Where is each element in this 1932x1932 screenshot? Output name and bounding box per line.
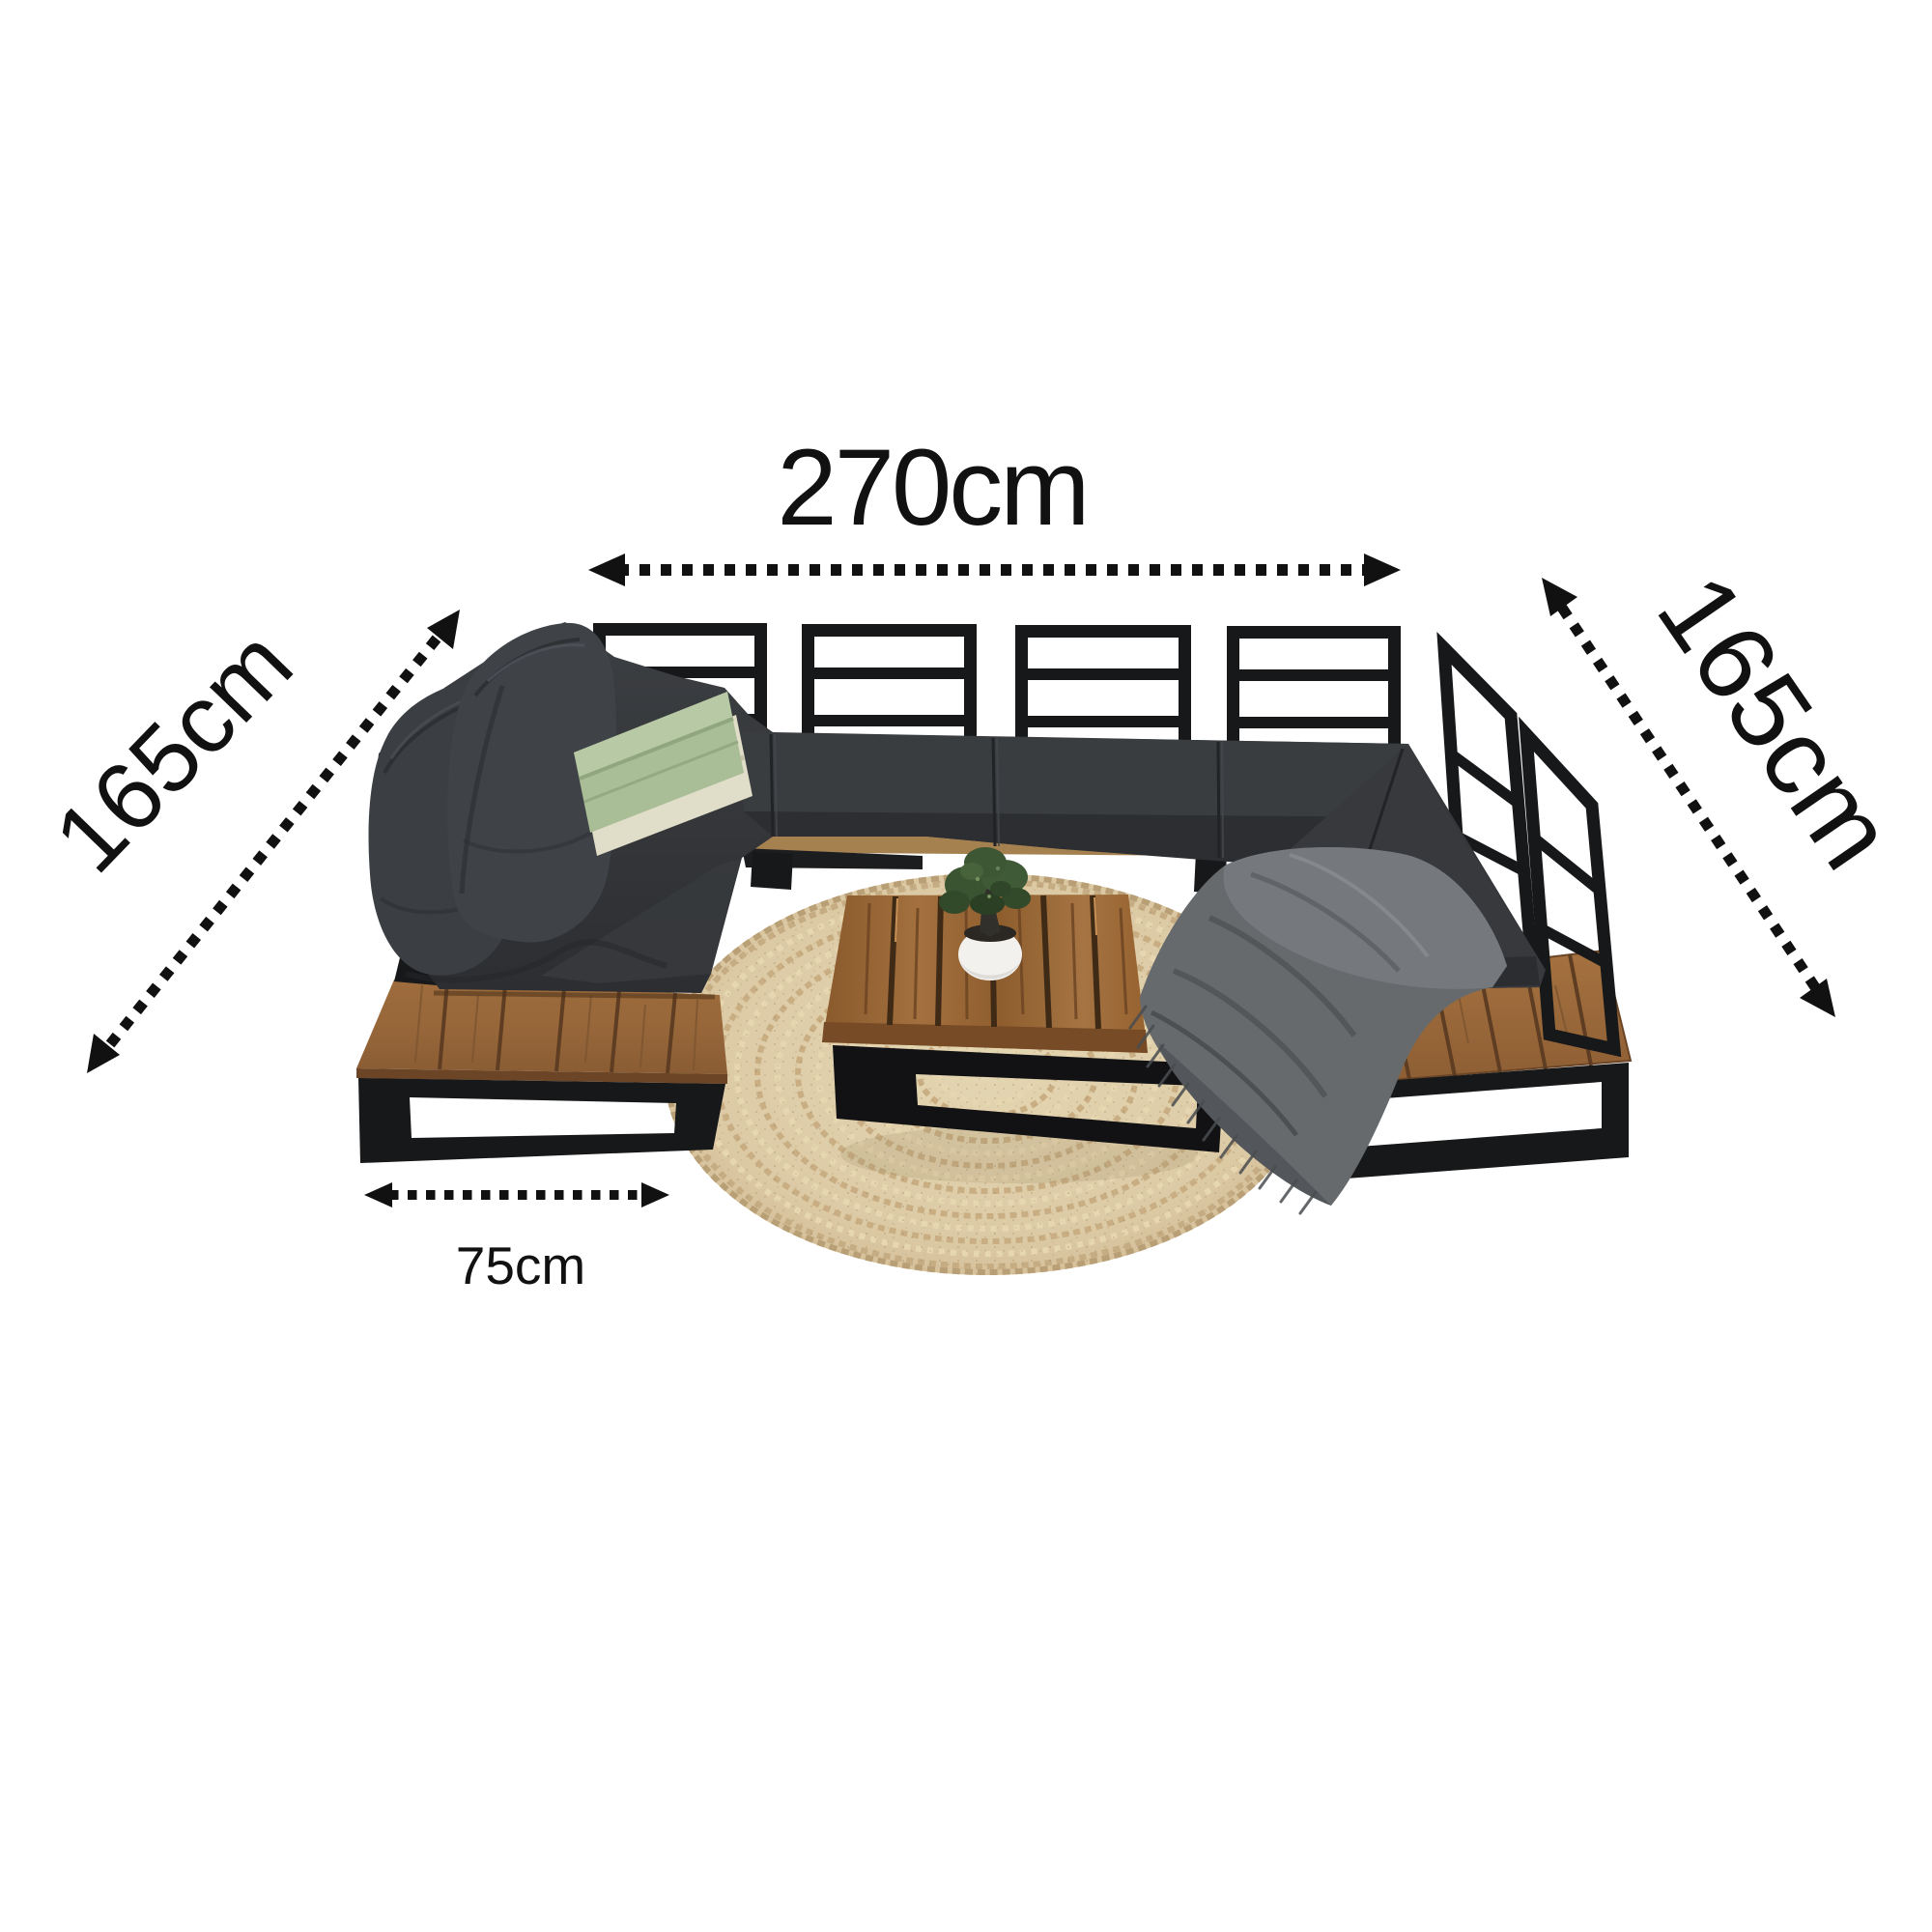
- svg-text:270cm: 270cm: [777, 427, 1087, 548]
- svg-text:75cm: 75cm: [456, 1236, 586, 1295]
